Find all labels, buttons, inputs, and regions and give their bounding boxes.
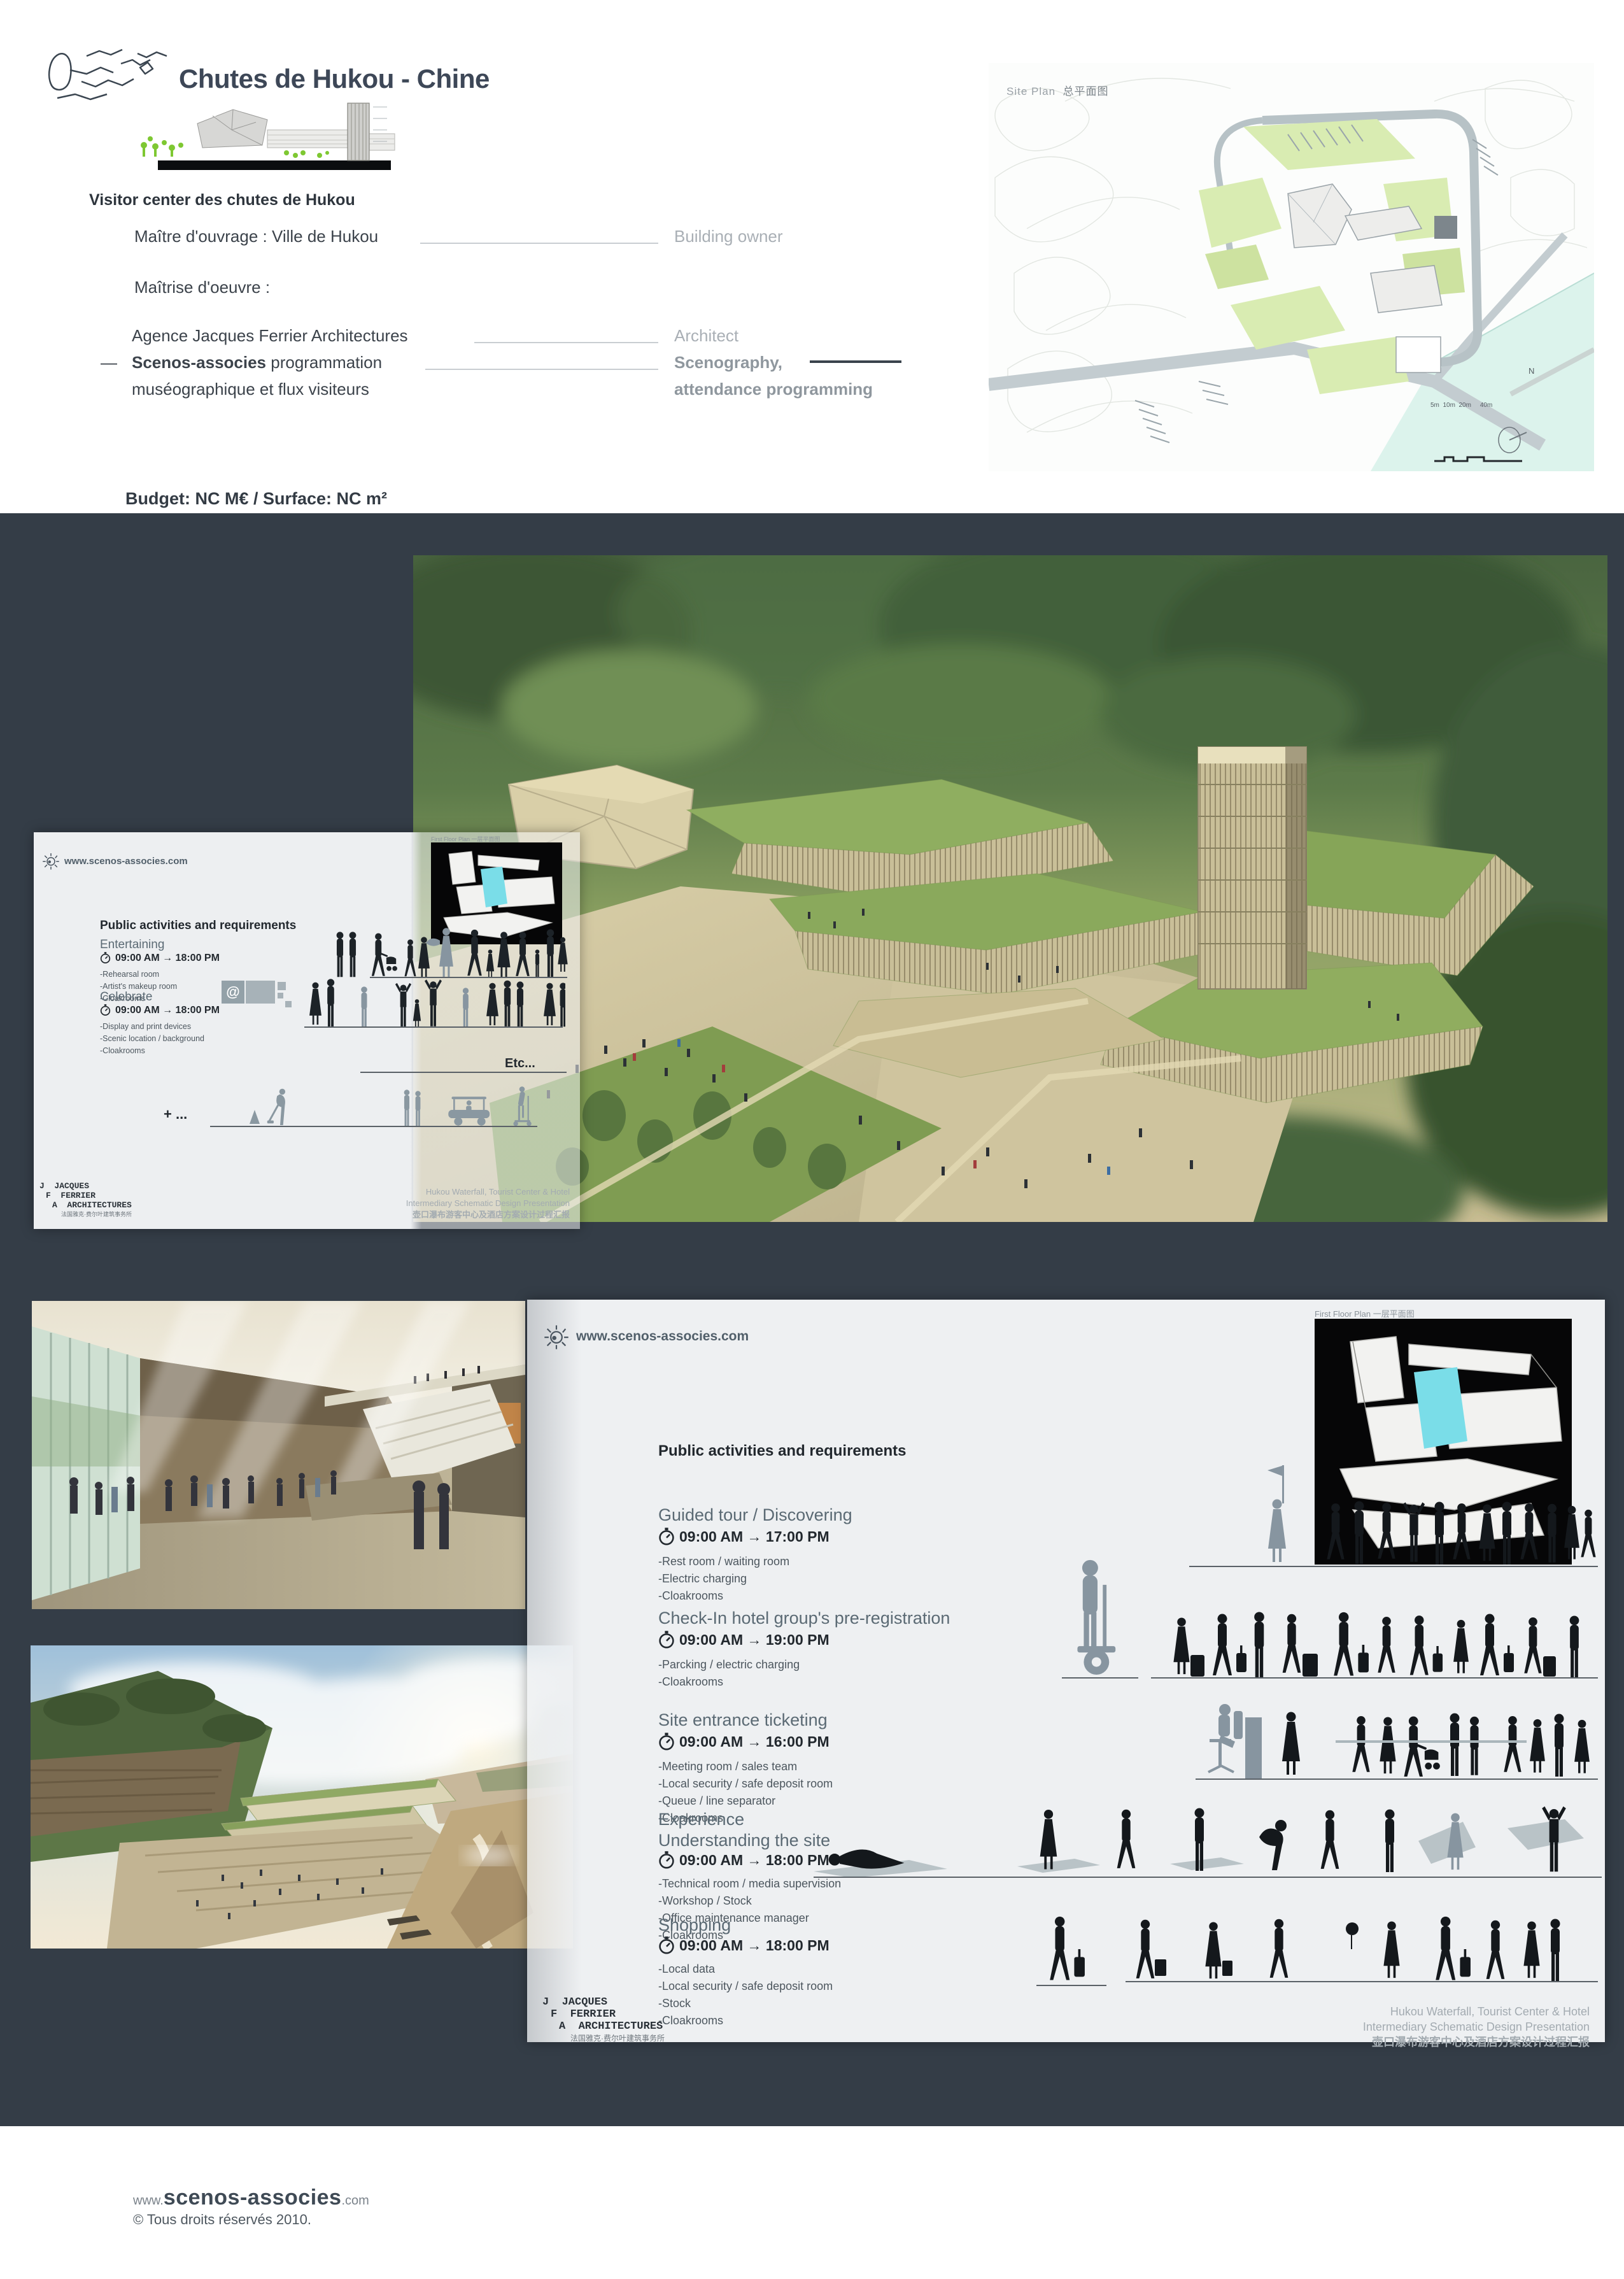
- footer-url-suffix: .com: [341, 2194, 369, 2208]
- slide2-section-time: 09:00 AM → 18:00 PM: [658, 1851, 830, 1870]
- footer: www.scenos-associes.com © Tous droits ré…: [133, 2185, 369, 2228]
- sceno-rest: programmation: [266, 353, 382, 372]
- program-slide-2: www.scenos-associes.com First Floor Plan…: [527, 1300, 1605, 2042]
- page-title: Chutes de Hukou - Chine: [179, 64, 490, 94]
- media-square: [278, 982, 286, 990]
- clock-icon: [658, 1733, 675, 1751]
- plus-label: + ...: [164, 1106, 187, 1123]
- site-plan-label: Site Plan 总平面图: [1006, 82, 1109, 98]
- clock-icon: [658, 1936, 675, 1955]
- etc-label: Etc...: [505, 1056, 535, 1071]
- sceno-field-en2: attendance programming: [674, 380, 873, 399]
- silhouette-row-ticketing: [1196, 1692, 1599, 1781]
- clock-icon: [100, 1004, 111, 1016]
- slide2-section-title: Shopping: [658, 1915, 731, 1936]
- media-at: @: [222, 981, 244, 1004]
- sceno-field-line2: muséographique et flux visiteurs: [132, 380, 369, 399]
- poster-page: Chutes de Hukou - Chine Visitor center d…: [0, 0, 1624, 2279]
- footer-url-prefix: www.: [133, 2194, 164, 2208]
- interior-rendering: [32, 1301, 525, 1609]
- site-plan-graphic: [989, 63, 1594, 471]
- slide2-plan-label: First Floor Plan 一层平面图: [1315, 1307, 1415, 1319]
- silhouette-row-families: [333, 921, 570, 980]
- slide2-caption: Hukou Waterfall, Tourist Center & HotelI…: [1363, 2004, 1590, 2050]
- sceno-field-en1: Scenography,: [674, 353, 782, 373]
- clock-icon: [658, 1631, 675, 1649]
- jfa-logo: J JACQUES F FERRIER A ARCHITECTURES 法国雅克…: [542, 1996, 665, 2043]
- scenos-sun-icon: [542, 1323, 570, 1351]
- elevation-sketch: [136, 97, 399, 172]
- moe-field: Maîtrise d'oeuvre :: [134, 278, 270, 297]
- sceno-dark-line: [810, 360, 901, 363]
- silhouette-row-checkin: [1062, 1559, 1599, 1680]
- scenos-sketch-logo: [45, 45, 172, 103]
- slide1-section-time: 09:00 AM → 18:00 PM: [100, 952, 220, 964]
- slide2-section-bullets: -Rest room / waiting room-Electric charg…: [658, 1553, 789, 1605]
- slide2-logo: www.scenos-associes.com: [542, 1323, 749, 1351]
- sceno-field: Scenos-associes programmation: [132, 353, 382, 373]
- program-slide-1: www.scenos-associes.com First Floor Plan…: [34, 832, 580, 1229]
- media-screen: [246, 981, 275, 1004]
- slide1-logo: www.scenos-associes.com: [41, 851, 188, 870]
- connector-line: [425, 369, 658, 370]
- silhouette-row-staff: [210, 1082, 539, 1128]
- silhouette-row-shopping: [1036, 1910, 1599, 1987]
- slide2-section-title: Guided tour / Discovering: [658, 1505, 852, 1526]
- main-rendering: [413, 555, 1607, 1222]
- clock-icon: [100, 952, 111, 964]
- scale-tick-labels: 5m 10m 20m 40m: [1430, 402, 1526, 409]
- slide1-section-time: 09:00 AM → 18:00 PM: [100, 1004, 220, 1016]
- media-square: [278, 993, 283, 998]
- silhouette-row-celebration: [304, 977, 565, 1028]
- slide1-website: www.scenos-associes.com: [64, 856, 188, 867]
- slide1-section-bullets: -Display and print devices -Scenic locat…: [100, 1021, 204, 1057]
- sceno-name: Scenos-associes: [132, 353, 266, 372]
- slide2-section-time: 09:00 AM → 17:00 PM: [658, 1528, 830, 1546]
- project-heading: Visitor center des chutes de Hukou: [89, 191, 355, 209]
- slide2-heading: Public activities and requirements: [658, 1442, 906, 1460]
- site-plan: Site Plan 总平面图 N 5m 10m 20m 40m: [989, 63, 1594, 471]
- slide2-section-bullets: -Local data-Local security / safe deposi…: [658, 1961, 833, 2029]
- slide2-section-title: Experience: [658, 1809, 744, 1830]
- budget-line: Budget: NC M€ / Surface: NC m²: [125, 489, 387, 509]
- clock-icon: [658, 1528, 675, 1546]
- silhouette-row-guided-tour: [1164, 1459, 1599, 1568]
- media-square: [285, 1001, 292, 1007]
- jfa-logo: J JACQUES F FERRIER A ARCHITECTURES 法国雅克…: [39, 1181, 132, 1218]
- media-block: @: [222, 981, 292, 1006]
- slide2-section-time: 09:00 AM → 18:00 PM: [658, 1936, 830, 1955]
- footer-url-name: scenos-associes: [164, 2185, 342, 2210]
- architect-field: Agence Jacques Ferrier Architectures: [132, 326, 408, 346]
- slide1-section-title: Celebrate: [100, 990, 152, 1004]
- owner-field-en: Building owner: [674, 227, 783, 246]
- footer-link[interactable]: www.scenos-associes.com: [133, 2185, 369, 2210]
- slide1-caption: Hukou Waterfall, Tourist Center & HotelI…: [406, 1186, 570, 1221]
- connector-line: [420, 243, 658, 244]
- compass-n-label: N: [1529, 366, 1534, 376]
- slide1-heading: Public activities and requirements: [100, 919, 296, 933]
- silhouette-row-experience: [814, 1803, 1603, 1879]
- slide2-section-title: Site entrance ticketing: [658, 1710, 828, 1731]
- slide1-section-title: Entertaining: [100, 938, 164, 952]
- slide2-section-time: 09:00 AM → 19:00 PM: [658, 1631, 830, 1649]
- slide2-section-title2: Understanding the site: [658, 1830, 830, 1851]
- slide2-section-time: 09:00 AM → 16:00 PM: [658, 1733, 830, 1751]
- etc-line: [360, 1072, 567, 1073]
- slide2-section-bullets: -Parcking / electric charging-Cloakrooms: [658, 1656, 800, 1691]
- slide2-website: www.scenos-associes.com: [576, 1329, 749, 1344]
- sceno-dash: —: [101, 353, 117, 373]
- scenos-sun-icon: [41, 851, 60, 870]
- architect-field-en: Architect: [674, 326, 738, 346]
- clock-icon: [658, 1851, 675, 1870]
- connector-line: [474, 342, 658, 343]
- slide2-section-title: Check-In hotel group's pre-registration: [658, 1608, 950, 1629]
- aerial-rendering: [31, 1645, 573, 1949]
- footer-copyright: © Tous droits réservés 2010.: [133, 2212, 369, 2228]
- dark-canvas: www.scenos-associes.com First Floor Plan…: [0, 513, 1624, 2126]
- owner-field: Maître d'ouvrage : Ville de Hukou: [134, 227, 378, 246]
